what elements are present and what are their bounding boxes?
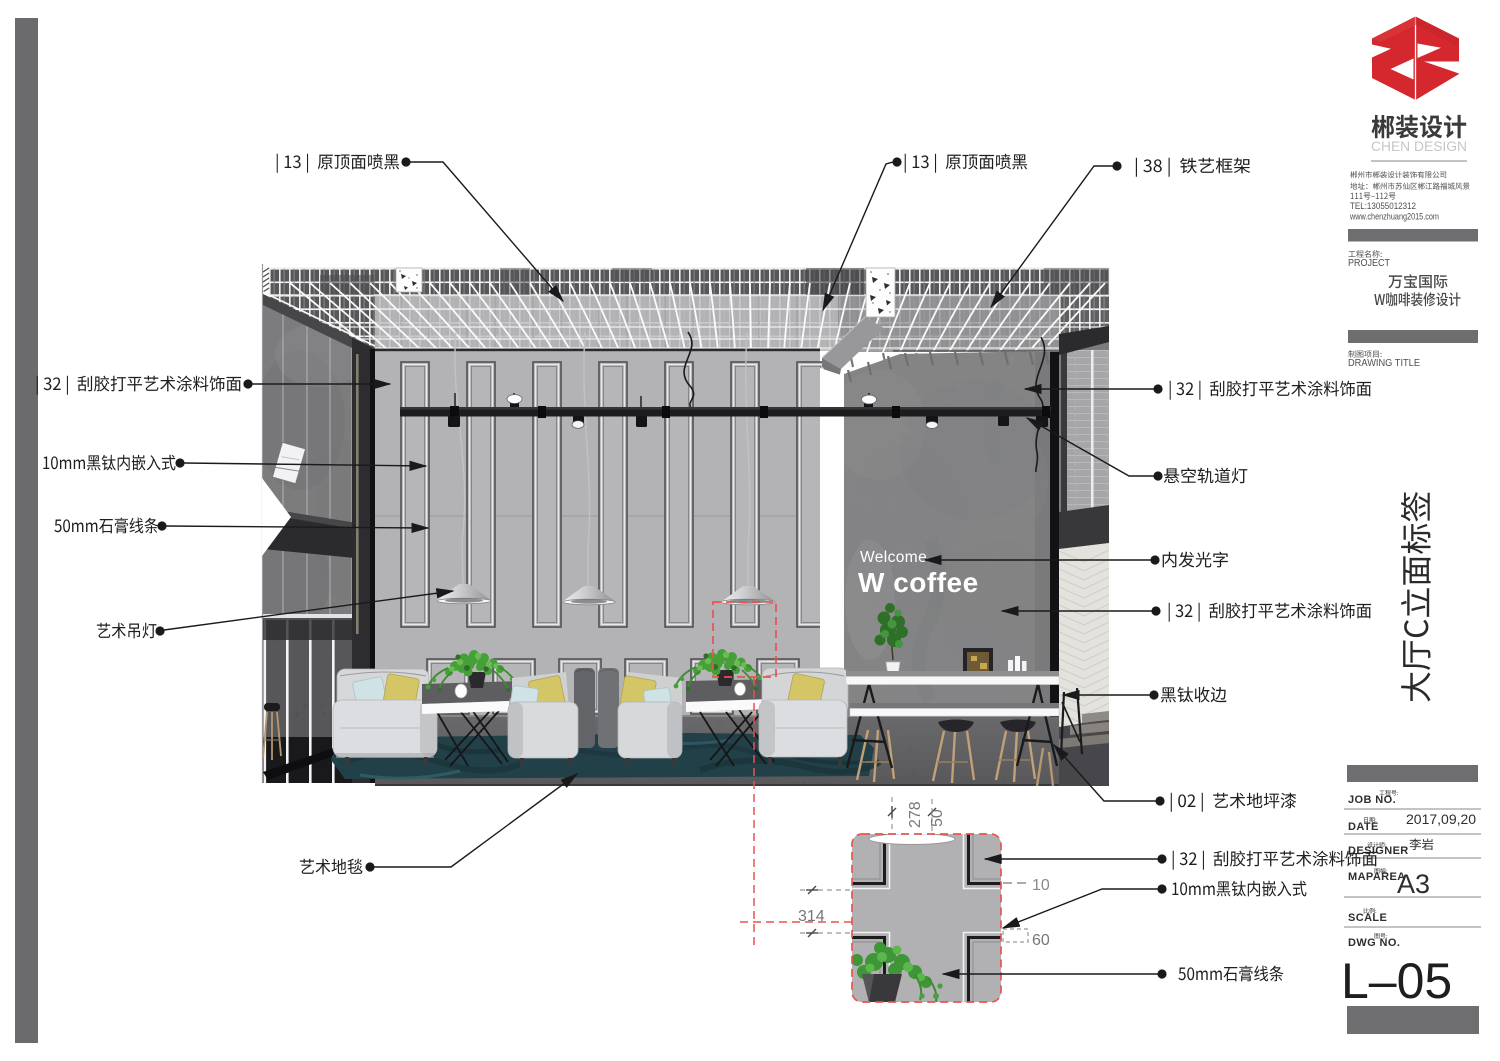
svg-text:60: 60: [1032, 932, 1050, 949]
svg-text:314: 314: [798, 908, 825, 925]
svg-text:Welcome: Welcome: [860, 549, 927, 566]
svg-text:PROJECT: PROJECT: [1348, 258, 1390, 269]
svg-text:SCALE: SCALE: [1348, 912, 1387, 924]
svg-text:A3: A3: [1397, 869, 1430, 899]
svg-text:L–05: L–05: [1341, 953, 1452, 1009]
svg-text:W coffee: W coffee: [858, 567, 979, 598]
svg-text:DESIGNER: DESIGNER: [1348, 845, 1409, 857]
svg-text:CHEN DESIGN: CHEN DESIGN: [1371, 139, 1467, 154]
svg-text:10: 10: [1032, 877, 1050, 894]
svg-text:www.chenzhuang2015.com: www.chenzhuang2015.com: [1349, 212, 1439, 223]
svg-text:2017,09,20: 2017,09,20: [1406, 811, 1476, 827]
svg-text:DRAWING TITLE: DRAWING TITLE: [1348, 358, 1420, 369]
svg-text:DATE: DATE: [1348, 821, 1379, 833]
svg-text:DWG NO.: DWG NO.: [1348, 937, 1400, 949]
svg-text:TEL:13055012312: TEL:13055012312: [1350, 201, 1416, 212]
svg-text:278: 278: [907, 801, 924, 828]
svg-text:JOB NO.: JOB NO.: [1348, 794, 1396, 806]
svg-text:50: 50: [929, 809, 946, 827]
